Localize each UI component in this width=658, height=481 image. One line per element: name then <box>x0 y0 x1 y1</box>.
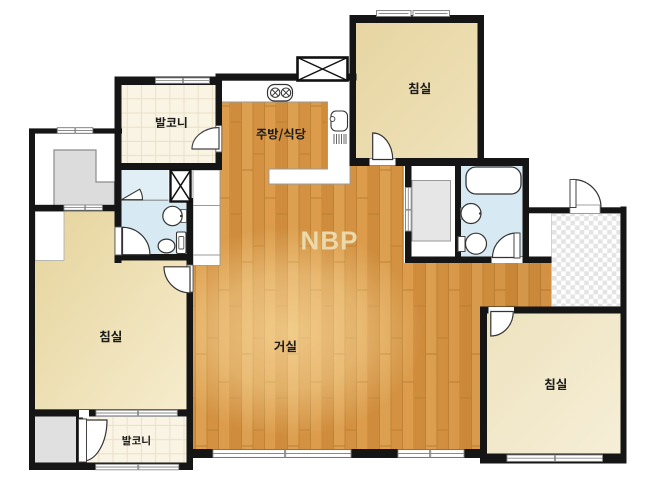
svg-text:NBP: NBP <box>301 226 359 256</box>
